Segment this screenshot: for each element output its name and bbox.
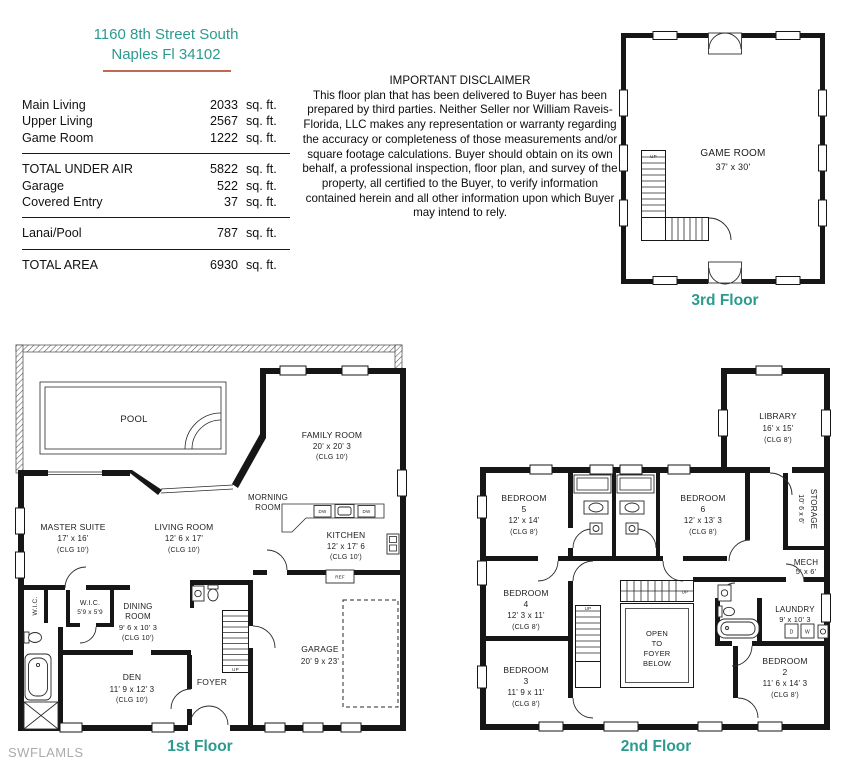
table-row: TOTAL UNDER AIR5822sq. ft. <box>22 161 290 177</box>
bedroom6-dims: 12' x 13' 3 <box>684 516 723 525</box>
row-value: 2567 <box>192 113 238 129</box>
laundry-fixtures: D W <box>785 624 828 638</box>
bedroom6-label: BEDROOM <box>680 493 725 503</box>
row-unit: sq. ft. <box>246 194 290 210</box>
dishwasher-label: DW <box>319 509 327 514</box>
library-label: LIBRARY <box>759 411 797 421</box>
bedroom5-clg: (CLG 8') <box>510 529 538 536</box>
dining-room-label: DINING <box>123 602 152 611</box>
stairs-up-label: UP <box>585 606 592 611</box>
row-value: 5822 <box>192 161 238 177</box>
row-value: 37 <box>192 194 238 210</box>
row-unit: sq. ft. <box>246 225 290 241</box>
master-suite-dims: 17' x 16' <box>57 534 88 543</box>
wic-side-label: W.I.C. <box>32 597 39 616</box>
stairs-up-label: UP <box>650 154 657 159</box>
bedroom3-label: BEDROOM <box>503 665 548 675</box>
morning-room-label: MORNING <box>248 493 288 502</box>
row-label: Upper Living <box>22 113 192 129</box>
dryer-label: D <box>790 630 794 636</box>
hall-bath-fixtures <box>717 585 759 638</box>
mech-label: MECH <box>794 558 818 567</box>
french-door-top <box>708 31 742 54</box>
third-floor-label: 3rd Floor <box>625 292 825 310</box>
walls <box>480 368 830 730</box>
first-floor-plan: POOL <box>14 342 424 737</box>
stairs-up-label: UP <box>232 667 239 672</box>
second-floor-plan: D W UP UP OPEN TO FOYER BELOW LIBRARY 16… <box>468 358 840 736</box>
floor-plan-sheet: 1160 8th Street South Naples Fl 34102 Ma… <box>0 0 844 768</box>
row-label: Game Room <box>22 130 192 146</box>
bedroom6-clg: (CLG 8') <box>689 529 717 536</box>
wic-dims: 5'9 x 5'9 <box>77 609 103 616</box>
table-divider <box>22 153 290 154</box>
bedroom5-number: 5 <box>522 504 527 514</box>
pool: POOL <box>40 382 226 454</box>
pool-label: POOL <box>120 414 147 425</box>
family-room-clg: (CLG 10') <box>316 454 348 461</box>
row-label: TOTAL AREA <box>22 257 192 273</box>
row-value: 1222 <box>192 130 238 146</box>
row-unit: sq. ft. <box>246 178 290 194</box>
garage-label: GARAGE <box>301 644 339 654</box>
table-row: Lanai/Pool787sq. ft. <box>22 225 290 241</box>
master-suite-clg: (CLG 10') <box>57 547 89 554</box>
table-row: Covered Entry37sq. ft. <box>22 194 290 210</box>
bedroom2-dims: 11' 6 x 14' 3 <box>763 679 808 688</box>
table-divider <box>22 217 290 218</box>
den-dims: 11' 9 x 12' 3 <box>110 685 155 694</box>
stairs-up-label: UP <box>682 590 689 595</box>
entry-door <box>188 706 230 731</box>
staircase: UP UP <box>576 581 694 688</box>
morning-room-label2: ROOM <box>255 503 281 512</box>
library-clg: (CLG 8') <box>764 437 792 444</box>
bedroom4-dims: 12' 3 x 11' <box>507 611 545 620</box>
table-row: Main Living2033sq. ft. <box>22 97 290 113</box>
table-row: TOTAL AREA6930sq. ft. <box>22 257 290 273</box>
row-value: 787 <box>192 225 238 241</box>
garage-dims: 20' 9 x 23' <box>301 657 339 666</box>
table-row: Garage522sq. ft. <box>22 178 290 194</box>
powder-room-fixtures <box>192 585 218 601</box>
row-label: TOTAL UNDER AIR <box>22 161 192 177</box>
dishwasher-label: DW <box>363 509 371 514</box>
den-label: DEN <box>123 672 142 682</box>
area-table: Main Living2033sq. ft. Upper Living2567s… <box>22 97 290 273</box>
storage-label: STORAGE <box>809 489 818 529</box>
kitchen-clg: (CLG 10') <box>330 554 362 561</box>
open-foyer-label: BELOW <box>643 659 672 668</box>
bedroom2-label: BEDROOM <box>762 656 807 666</box>
bedroom6-number: 6 <box>701 504 706 514</box>
bedroom4-label: BEDROOM <box>503 588 548 598</box>
disclaimer: IMPORTANT DISCLAIMER This floor plan tha… <box>301 74 619 221</box>
family-room-dims: 20' x 20' 3 <box>313 442 352 451</box>
library-dims: 16' x 15' <box>762 424 793 433</box>
den-clg: (CLG 10') <box>116 697 148 704</box>
bedroom3-clg: (CLG 8') <box>512 701 540 708</box>
row-value: 6930 <box>192 257 238 273</box>
disclaimer-title: IMPORTANT DISCLAIMER <box>301 74 619 89</box>
dining-room-label2: ROOM <box>125 612 151 621</box>
bedroom3-dims: 11' 9 x 11' <box>508 688 545 697</box>
bedroom5-label: BEDROOM <box>501 493 546 503</box>
open-foyer-label: OPEN <box>646 629 668 638</box>
bedroom2-clg: (CLG 8') <box>771 692 799 699</box>
mls-watermark: SWFLAMLS <box>8 745 84 760</box>
family-room-label: FAMILY ROOM <box>302 430 362 440</box>
french-door-bottom <box>708 262 742 286</box>
living-room-dims: 12' 6 x 17' <box>165 534 203 543</box>
bedroom5-dims: 12' x 14' <box>508 516 539 525</box>
dining-room-clg: (CLG 10') <box>122 635 154 642</box>
bedroom4-number: 4 <box>524 599 529 609</box>
table-row: Upper Living2567sq. ft. <box>22 113 290 129</box>
row-value: 522 <box>192 178 238 194</box>
open-foyer-label: TO <box>652 639 663 648</box>
game-room-dims: 37' x 30' <box>716 162 751 172</box>
living-room-label: LIVING ROOM <box>155 522 214 532</box>
garage-parking-outline <box>343 600 398 707</box>
kitchen-label: KITCHEN <box>327 530 366 540</box>
open-to-foyer: OPEN TO FOYER BELOW <box>621 604 694 688</box>
row-unit: sq. ft. <box>246 113 290 129</box>
row-label: Main Living <box>22 97 192 113</box>
dining-room-dims: 9' 6 x 10' 3 <box>119 623 157 632</box>
row-label: Lanai/Pool <box>22 225 192 241</box>
wic-label: W.I.C. <box>80 600 100 607</box>
mech-dims: 5' x 6' <box>796 567 817 576</box>
address-line2: Naples Fl 34102 <box>38 45 294 65</box>
foyer-label: FOYER <box>197 677 227 687</box>
third-floor-plan: UP GAME ROOM 37' x 30' <box>613 24 837 292</box>
address-line1: 1160 8th Street South <box>38 25 294 45</box>
laundry-dims: 9' x 10' 3 <box>779 615 811 624</box>
first-floor-label: 1st Floor <box>100 738 300 756</box>
bedroom4-clg: (CLG 8') <box>512 624 540 631</box>
master-bath-fixtures <box>24 632 58 729</box>
kitchen-dims: 12' x 17' 6 <box>327 542 366 551</box>
washer-label: W <box>805 630 810 636</box>
master-suite-label: MASTER SUITE <box>40 522 105 532</box>
second-floor-label: 2nd Floor <box>556 738 756 756</box>
living-room-clg: (CLG 10') <box>168 547 200 554</box>
disclaimer-body: This floor plan that has been delivered … <box>301 89 619 221</box>
laundry-label: LAUNDRY <box>775 605 815 614</box>
staircase: UP <box>223 611 249 673</box>
bedroom3-number: 3 <box>524 676 529 686</box>
address-underline <box>103 70 231 72</box>
row-unit: sq. ft. <box>246 257 290 273</box>
refrigerator-label: REF <box>335 575 345 580</box>
storage-dims: 10' 6 x 6' <box>797 494 804 524</box>
row-label: Garage <box>22 178 192 194</box>
table-row: Game Room1222sq. ft. <box>22 130 290 146</box>
row-unit: sq. ft. <box>246 97 290 113</box>
open-foyer-label: FOYER <box>644 649 671 658</box>
property-address: 1160 8th Street South Naples Fl 34102 <box>38 25 294 65</box>
row-unit: sq. ft. <box>246 130 290 146</box>
table-divider <box>22 249 290 250</box>
row-value: 2033 <box>192 97 238 113</box>
game-room-label: GAME ROOM <box>700 148 765 159</box>
bedroom2-number: 2 <box>783 667 788 677</box>
row-unit: sq. ft. <box>246 161 290 177</box>
row-label: Covered Entry <box>22 194 192 210</box>
